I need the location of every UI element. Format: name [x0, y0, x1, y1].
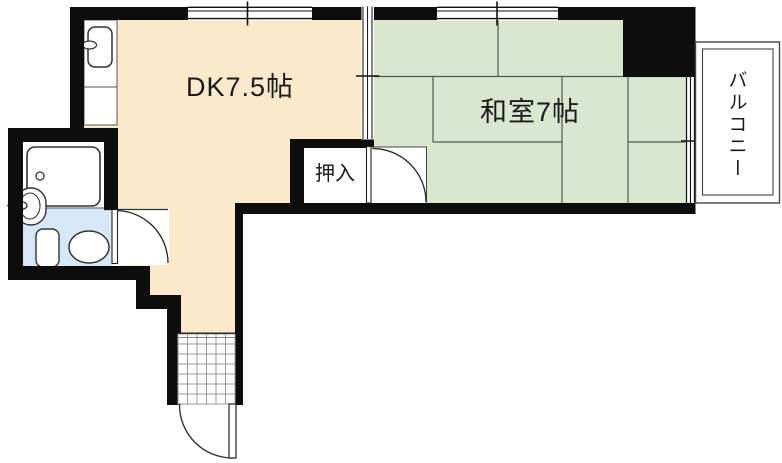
kitchen-counter	[83, 20, 118, 125]
kitchen-faucet	[83, 41, 97, 49]
wall-entry-right	[235, 203, 243, 405]
bath-door	[104, 209, 169, 265]
toilet-bowl	[69, 231, 109, 263]
wall-bath-right	[104, 128, 118, 210]
room-label-balcony: バルコニー	[719, 52, 751, 198]
toilet-tank	[36, 229, 59, 267]
bath-door-leaf	[112, 209, 118, 264]
entrance-door-arc	[180, 405, 233, 458]
entrance-door	[180, 404, 237, 458]
floor-plan-drawing	[0, 0, 782, 463]
washitsu-door	[367, 147, 427, 204]
wall-top	[70, 7, 696, 20]
floor-plan: DK7.5帖 和室7帖 押入 バルコニー	[0, 0, 782, 463]
wall-pillar	[623, 7, 696, 77]
bathtub-drain	[36, 172, 44, 180]
room-label-oshiire: 押入	[298, 163, 372, 185]
wall-bath-left	[8, 128, 23, 280]
entrance-tile	[178, 333, 235, 404]
wall-bath-bottom	[8, 266, 150, 280]
room-label-dk: DK7.5帖	[150, 73, 330, 103]
wall-bath-top	[8, 128, 118, 142]
room-label-washitsu: 和室7帖	[435, 98, 625, 128]
entrance-door-leaf	[229, 404, 236, 458]
wall-left-upper	[70, 7, 84, 142]
wall-bottom	[235, 203, 696, 214]
